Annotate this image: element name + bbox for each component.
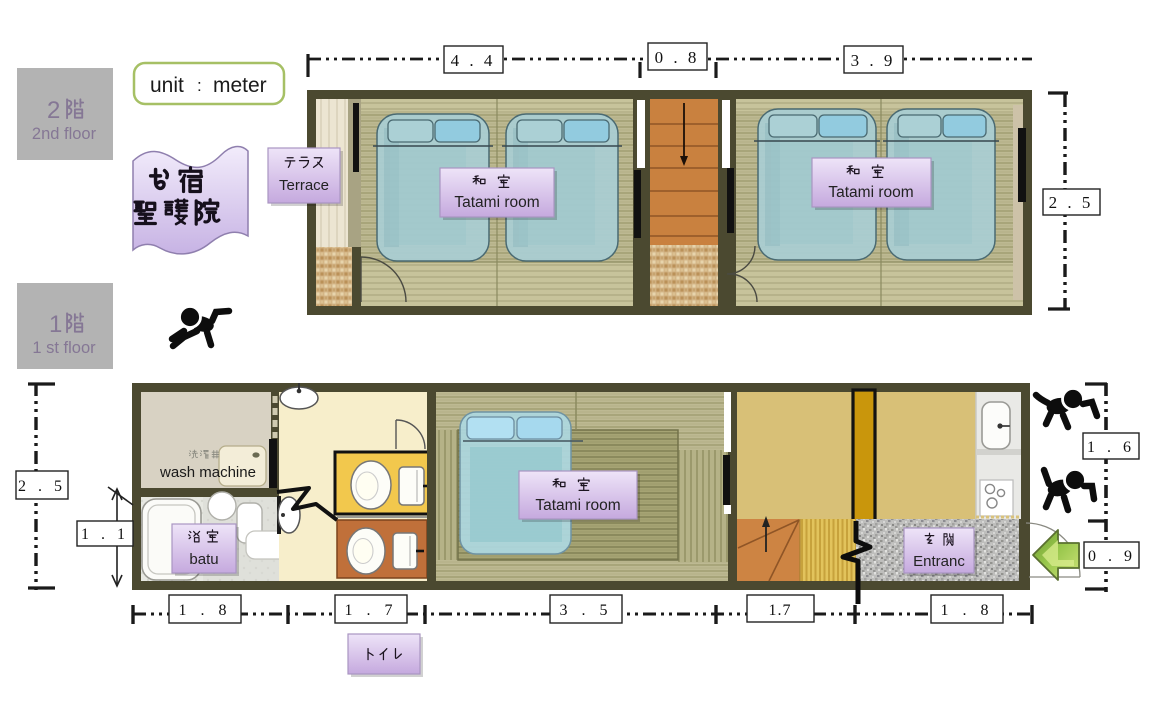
svg-text:0 . 9: 0 . 9 bbox=[1088, 548, 1136, 565]
svg-text:3 . 9: 3 . 9 bbox=[851, 51, 896, 70]
svg-text:1 . 7: 1 . 7 bbox=[345, 602, 398, 619]
svg-text:4 . 4: 4 . 4 bbox=[451, 51, 496, 70]
svg-text::: : bbox=[197, 76, 202, 95]
svg-text:1.7: 1.7 bbox=[769, 602, 792, 619]
svg-text:unit: unit bbox=[150, 74, 184, 97]
svg-text:1 . 8: 1 . 8 bbox=[941, 602, 994, 619]
svg-text:1: 1 bbox=[49, 311, 62, 338]
svg-text:Tatami room: Tatami room bbox=[828, 184, 913, 201]
svg-text:Tatami room: Tatami room bbox=[535, 497, 620, 514]
svg-text:Entranc: Entranc bbox=[913, 553, 965, 570]
svg-text:1 st floor: 1 st floor bbox=[32, 339, 96, 357]
svg-text:1 . 1: 1 . 1 bbox=[81, 526, 129, 543]
svg-text:3 . 5: 3 . 5 bbox=[560, 602, 613, 619]
svg-text:Tatami room: Tatami room bbox=[454, 194, 539, 211]
svg-text:0 . 8: 0 . 8 bbox=[655, 48, 700, 67]
svg-text:2 . 5: 2 . 5 bbox=[1049, 193, 1094, 212]
svg-text:2nd floor: 2nd floor bbox=[32, 125, 97, 143]
svg-text:wash machine: wash machine bbox=[159, 464, 256, 481]
svg-text:1 . 6: 1 . 6 bbox=[1087, 439, 1135, 456]
svg-text:2: 2 bbox=[47, 97, 60, 124]
svg-text:2 . 5: 2 . 5 bbox=[18, 478, 66, 495]
svg-text:meter: meter bbox=[213, 74, 267, 97]
svg-text:batu: batu bbox=[189, 551, 218, 568]
svg-text:Terrace: Terrace bbox=[279, 177, 329, 194]
svg-text:1 . 8: 1 . 8 bbox=[179, 602, 232, 619]
